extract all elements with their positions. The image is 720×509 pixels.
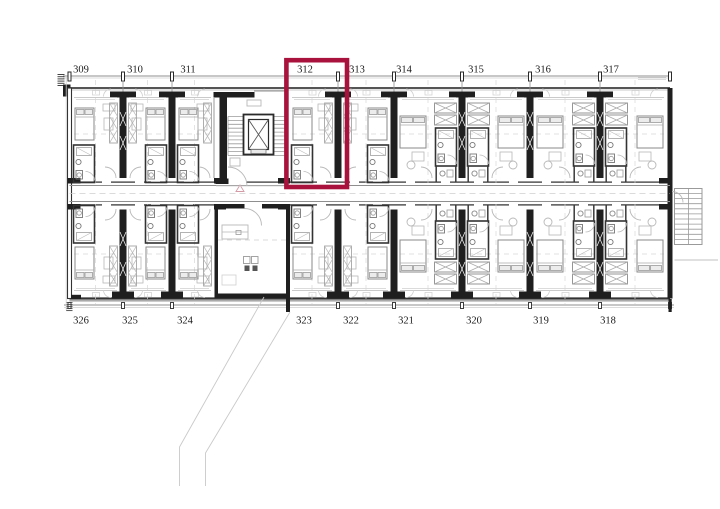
- svg-text:325: 325: [122, 316, 138, 327]
- svg-text:316: 316: [535, 65, 551, 76]
- svg-text:321: 321: [398, 316, 414, 327]
- svg-text:315: 315: [468, 65, 484, 76]
- svg-text:326: 326: [73, 316, 89, 327]
- svg-text:317: 317: [603, 65, 619, 76]
- svg-text:312: 312: [297, 65, 313, 76]
- svg-text:309: 309: [73, 65, 89, 76]
- svg-text:314: 314: [396, 65, 413, 76]
- svg-text:313: 313: [349, 65, 365, 76]
- svg-text:311: 311: [180, 65, 195, 76]
- svg-text:324: 324: [177, 316, 194, 327]
- svg-text:310: 310: [127, 65, 143, 76]
- svg-text:318: 318: [600, 316, 616, 327]
- svg-text:320: 320: [466, 316, 482, 327]
- svg-text:323: 323: [296, 316, 312, 327]
- svg-text:319: 319: [533, 316, 549, 327]
- svg-text:322: 322: [343, 316, 359, 327]
